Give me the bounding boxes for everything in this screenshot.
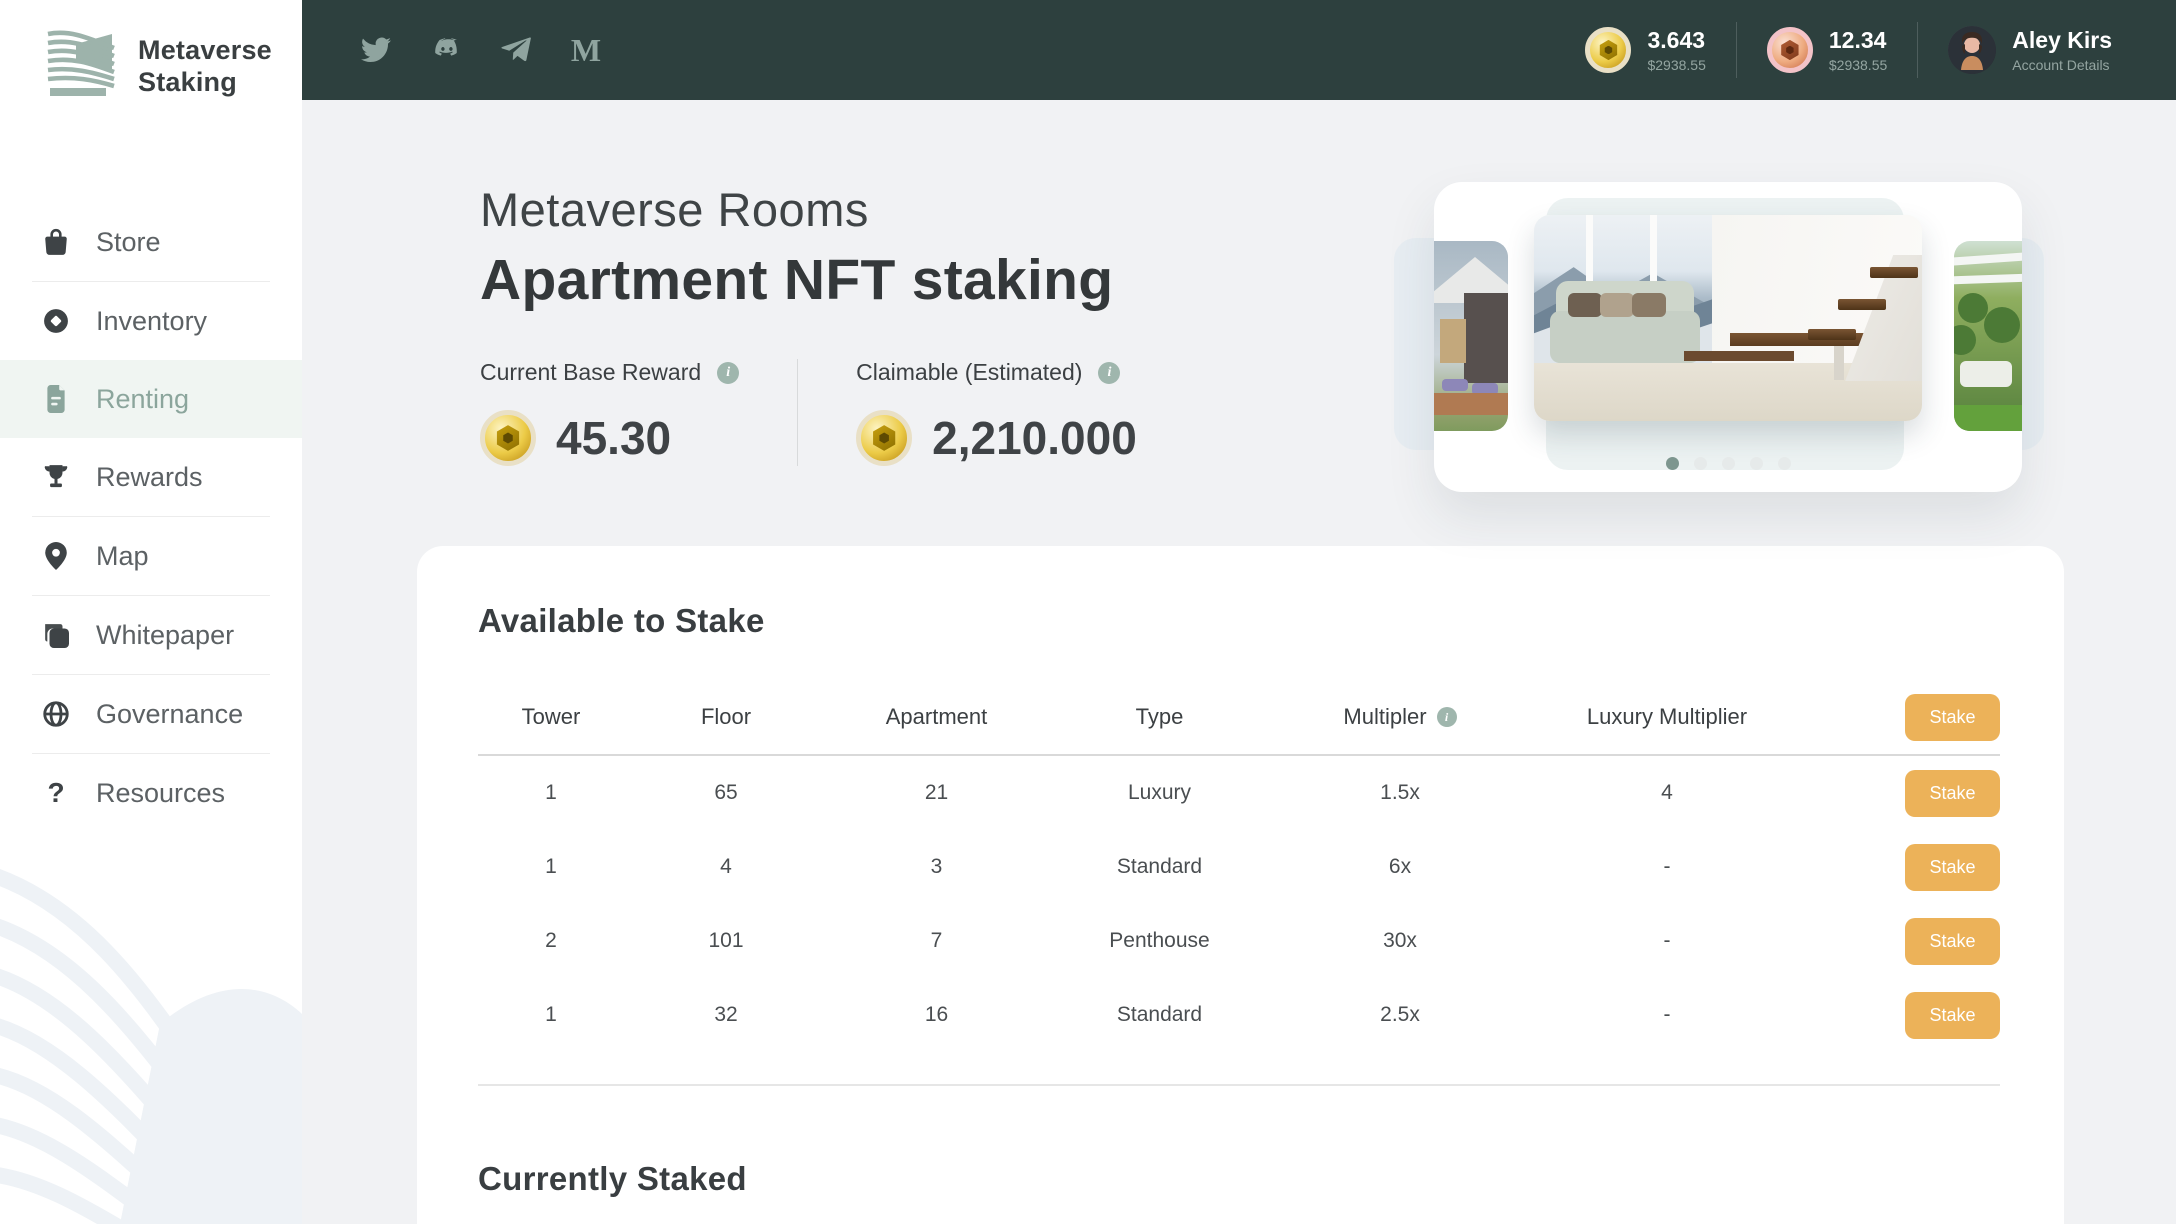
sidebar: Metaverse Staking Store Inventory: [0, 0, 302, 1224]
page-subtitle: Metaverse Rooms: [480, 182, 1137, 237]
twitter-icon[interactable]: [360, 34, 392, 66]
inventory-token-icon: [42, 307, 70, 335]
carousel-main-image[interactable]: [1534, 215, 1922, 421]
apartment-carousel: [1434, 182, 2022, 492]
shopping-bag-icon: [42, 228, 70, 256]
currently-staked-title: Currently Staked: [478, 1160, 2000, 1198]
globe-icon: [42, 700, 70, 728]
user-avatar: [1948, 26, 1996, 74]
app-title: Metaverse Staking: [138, 35, 272, 97]
token-amount: 3.643: [1647, 27, 1705, 54]
col-luxury-multiplier: Luxury Multiplier: [1526, 704, 1808, 730]
token-usd-value: $2938.55: [1829, 57, 1887, 73]
sidebar-item-whitepaper[interactable]: Whitepaper: [0, 596, 302, 674]
topbar: M 3.643 $2938.55 12.34 $2938.55: [302, 0, 2176, 100]
gold-coin-icon: [1585, 27, 1631, 73]
cell-floor: 32: [624, 1003, 828, 1027]
col-multiplier: Multipler i: [1274, 704, 1526, 730]
table-header-row: Tower Floor Apartment Type Multipler i L…: [478, 686, 2000, 748]
cell-multiplier: 1.5x: [1274, 781, 1526, 805]
staking-card: Available to Stake Tower Floor Apartment…: [417, 546, 2064, 1224]
sidebar-nav: Store Inventory Renting: [0, 203, 302, 832]
stat-value: 2,210.000: [932, 411, 1137, 465]
main-content: Metaverse Rooms Apartment NFT staking Cu…: [302, 100, 2176, 1224]
token-balance-pink: 12.34 $2938.55: [1767, 27, 1887, 73]
stake-button[interactable]: Stake: [1905, 770, 2000, 817]
map-pin-icon: [42, 542, 70, 570]
info-icon[interactable]: i: [1437, 707, 1457, 727]
decorative-waves: [0, 844, 302, 1224]
topbar-right: 3.643 $2938.55 12.34 $2938.55: [1585, 22, 2112, 78]
account-name: Aley Kirs: [2012, 27, 2112, 54]
cell-tower: 1: [478, 855, 624, 879]
carousel-dot[interactable]: [1722, 457, 1735, 470]
cell-apartment: 21: [828, 781, 1045, 805]
stake-button[interactable]: Stake: [1905, 992, 2000, 1039]
table-divider: [478, 1084, 2000, 1086]
stat-claimable: Claimable (Estimated) i 2,210.000: [856, 359, 1137, 466]
cell-apartment: 3: [828, 855, 1045, 879]
cell-luxury-multiplier: -: [1526, 855, 1808, 879]
stat-value: 45.30: [556, 411, 671, 465]
gold-coin-icon: [856, 410, 912, 466]
cell-type: Penthouse: [1045, 929, 1274, 953]
cell-floor: 65: [624, 781, 828, 805]
token-amount: 12.34: [1829, 27, 1887, 54]
sidebar-item-resources[interactable]: ? Resources: [0, 754, 302, 832]
sidebar-item-governance[interactable]: Governance: [0, 675, 302, 753]
col-type: Type: [1045, 704, 1274, 730]
cell-floor: 101: [624, 929, 828, 953]
info-icon[interactable]: i: [717, 362, 739, 384]
medium-icon[interactable]: M: [570, 34, 602, 66]
available-to-stake-title: Available to Stake: [478, 602, 2000, 640]
topbar-divider: [1736, 22, 1737, 78]
stake-button[interactable]: Stake: [1905, 918, 2000, 965]
cell-type: Standard: [1045, 1003, 1274, 1027]
cell-apartment: 7: [828, 929, 1045, 953]
stake-button[interactable]: Stake: [1905, 844, 2000, 891]
sidebar-item-map[interactable]: Map: [0, 517, 302, 595]
sidebar-item-label: Governance: [96, 699, 243, 730]
col-floor: Floor: [624, 704, 828, 730]
carousel-dot[interactable]: [1750, 457, 1763, 470]
carousel-next-image[interactable]: [1954, 241, 2022, 431]
social-links: M: [360, 34, 602, 66]
page-title: Apartment NFT staking: [480, 247, 1137, 313]
trophy-icon: [42, 463, 70, 491]
carousel-dot[interactable]: [1694, 457, 1707, 470]
carousel-dot[interactable]: [1778, 457, 1791, 470]
carousel-dot[interactable]: [1666, 457, 1679, 470]
stake-button-header[interactable]: Stake: [1905, 694, 2000, 741]
col-apartment: Apartment: [828, 704, 1045, 730]
cell-multiplier: 6x: [1274, 855, 1526, 879]
telegram-icon[interactable]: [500, 34, 532, 66]
cell-multiplier: 2.5x: [1274, 1003, 1526, 1027]
cell-luxury-multiplier: -: [1526, 929, 1808, 953]
info-icon[interactable]: i: [1098, 362, 1120, 384]
table-row: 2 101 7 Penthouse 30x - Stake: [478, 904, 2000, 978]
hero-section: Metaverse Rooms Apartment NFT staking Cu…: [417, 100, 2064, 492]
carousel-dots: [1434, 457, 2022, 470]
table-row: 1 4 3 Standard 6x - Stake: [478, 830, 2000, 904]
cell-tower: 2: [478, 929, 624, 953]
cell-multiplier: 30x: [1274, 929, 1526, 953]
token-balance-gold: 3.643 $2938.55: [1585, 27, 1705, 73]
available-table: Tower Floor Apartment Type Multipler i L…: [478, 686, 2000, 1086]
stat-divider: [797, 359, 798, 466]
carousel-card: [1434, 182, 2022, 492]
topbar-divider: [1917, 22, 1918, 78]
table-row: 1 32 16 Standard 2.5x - Stake: [478, 978, 2000, 1052]
sidebar-item-renting[interactable]: Renting: [0, 360, 302, 438]
sidebar-item-label: Inventory: [96, 306, 207, 337]
account-details-link[interactable]: Account Details: [2012, 57, 2112, 73]
stat-label: Claimable (Estimated): [856, 359, 1082, 386]
sidebar-item-label: Rewards: [96, 462, 203, 493]
cell-tower: 1: [478, 781, 624, 805]
cell-tower: 1: [478, 1003, 624, 1027]
table-row: 1 65 21 Luxury 1.5x 4 Stake: [478, 756, 2000, 830]
sidebar-item-store[interactable]: Store: [0, 203, 302, 281]
col-tower: Tower: [478, 704, 624, 730]
cell-type: Standard: [1045, 855, 1274, 879]
sidebar-item-inventory[interactable]: Inventory: [0, 282, 302, 360]
sidebar-item-rewards[interactable]: Rewards: [0, 438, 302, 516]
carousel-prev-image[interactable]: [1434, 241, 1508, 431]
cell-luxury-multiplier: -: [1526, 1003, 1808, 1027]
copy-pages-icon: [42, 621, 70, 649]
cell-type: Luxury: [1045, 781, 1274, 805]
logo-waves-icon: [40, 26, 122, 107]
app-logo[interactable]: Metaverse Staking: [0, 0, 302, 107]
stat-current-base-reward: Current Base Reward i 45.30: [480, 359, 739, 466]
sidebar-item-label: Store: [96, 227, 161, 258]
sidebar-item-label: Whitepaper: [96, 620, 234, 651]
account-menu[interactable]: Aley Kirs Account Details: [1948, 26, 2112, 74]
discord-icon[interactable]: [430, 34, 462, 66]
document-icon: [42, 385, 70, 413]
token-usd-value: $2938.55: [1647, 57, 1705, 73]
reward-stats: Current Base Reward i 45.30 Claimable (E…: [480, 359, 1137, 466]
stat-label: Current Base Reward: [480, 359, 701, 386]
sidebar-item-label: Map: [96, 541, 149, 572]
cell-floor: 4: [624, 855, 828, 879]
cell-luxury-multiplier: 4: [1526, 781, 1808, 805]
pink-coin-icon: [1767, 27, 1813, 73]
question-mark-icon: ?: [42, 779, 70, 807]
sidebar-item-label: Renting: [96, 384, 189, 415]
cell-apartment: 16: [828, 1003, 1045, 1027]
sidebar-item-label: Resources: [96, 778, 225, 809]
gold-coin-icon: [480, 410, 536, 466]
